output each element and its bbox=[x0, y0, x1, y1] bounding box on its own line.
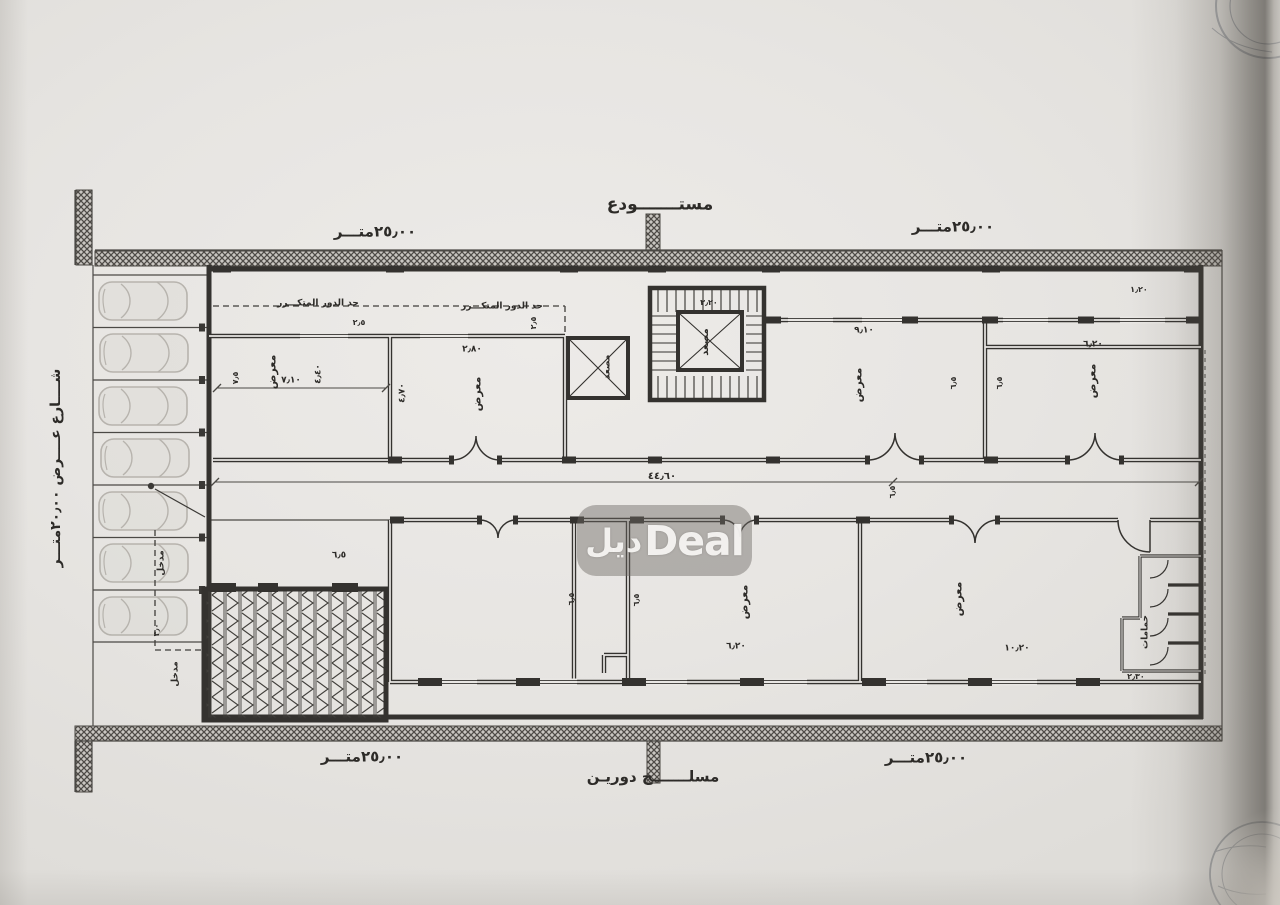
paper-edge-shadow bbox=[1130, 0, 1280, 905]
stairwell bbox=[650, 288, 764, 400]
left-shadow bbox=[0, 0, 28, 905]
paper-corner-highlight bbox=[1206, 809, 1280, 905]
parking-cars bbox=[99, 282, 189, 635]
bay-ticks bbox=[199, 324, 205, 595]
doors bbox=[452, 433, 1150, 552]
door-jambs bbox=[449, 456, 1124, 525]
bottom-shadow bbox=[0, 869, 1280, 905]
floor-plan-drawing bbox=[0, 0, 1280, 905]
scanned-floor-plan: مستـــــــودع٢٥٫٠٠متـــر٢٥٫٠٠متـــر٢٥٫٠٠… bbox=[0, 0, 1280, 905]
ramp bbox=[204, 583, 386, 720]
stair-treads bbox=[652, 290, 764, 398]
light-shaft bbox=[568, 338, 628, 398]
